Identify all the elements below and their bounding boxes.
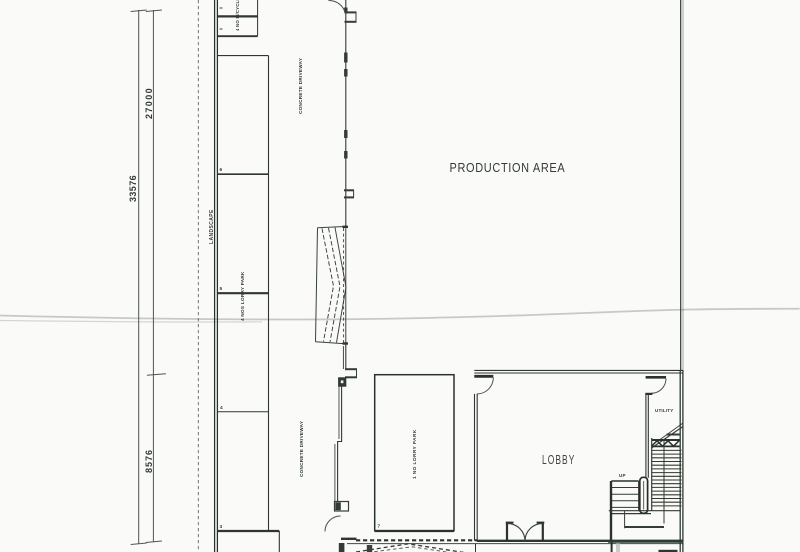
svg-text:CONCRETE DRIVEWAY: CONCRETE DRIVEWAY bbox=[299, 421, 304, 477]
svg-text:1 NO LORRY PARK: 1 NO LORRY PARK bbox=[412, 429, 418, 479]
svg-text:8576: 8576 bbox=[144, 449, 154, 473]
svg-text:6: 6 bbox=[220, 167, 223, 173]
svg-text:33576: 33576 bbox=[128, 175, 138, 202]
svg-text:4: 4 bbox=[220, 405, 223, 411]
svg-text:5: 5 bbox=[220, 286, 223, 292]
svg-text:7: 7 bbox=[378, 524, 381, 529]
svg-text:4 NOS LORRY PARK: 4 NOS LORRY PARK bbox=[240, 271, 245, 321]
svg-text:PRODUCTION AREA: PRODUCTION AREA bbox=[450, 160, 566, 175]
svg-text:UP: UP bbox=[619, 473, 626, 478]
svg-text:LOBBY: LOBBY bbox=[542, 453, 575, 467]
svg-text:4 NO M/CYCLE: 4 NO M/CYCLE bbox=[235, 0, 240, 31]
svg-text:CONCRETE DRIVEWAY: CONCRETE DRIVEWAY bbox=[298, 58, 303, 114]
svg-text:27000: 27000 bbox=[144, 87, 154, 119]
svg-text:3: 3 bbox=[220, 524, 223, 530]
svg-text:UTILITY: UTILITY bbox=[655, 408, 673, 413]
